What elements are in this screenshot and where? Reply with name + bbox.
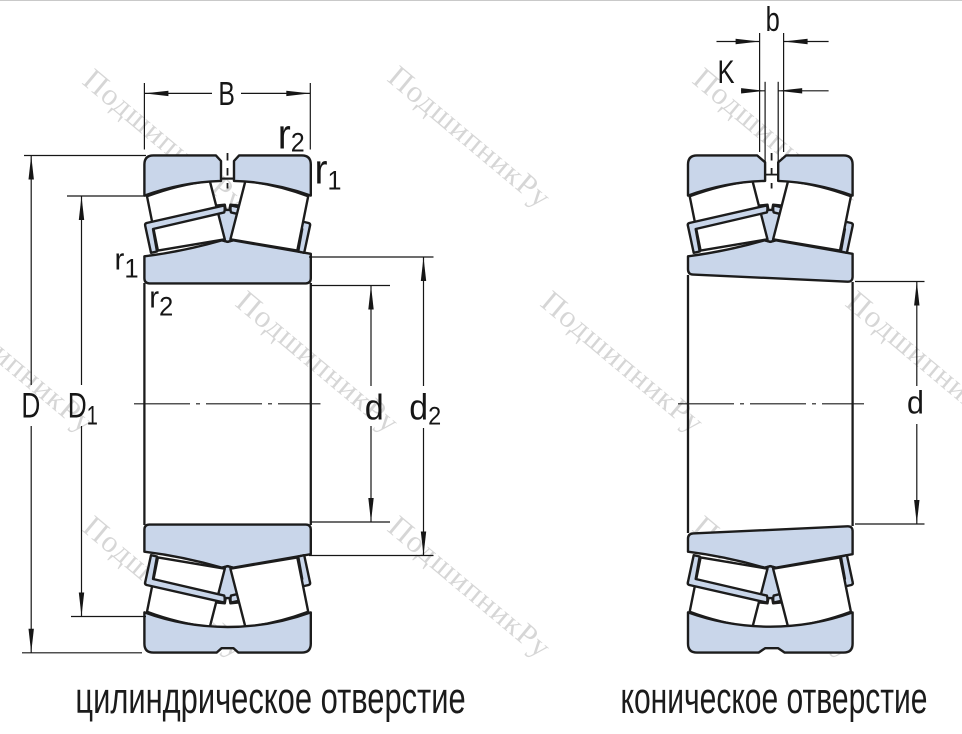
svg-text:цилиндрическое отверстие: цилиндрическое отверстие	[75, 674, 465, 722]
svg-text:d: d	[365, 388, 384, 428]
svg-text:коническое отверстие: коническое отверстие	[621, 673, 928, 722]
svg-text:B: B	[218, 77, 235, 113]
svg-text:b: b	[766, 2, 780, 39]
svg-text:d: d	[907, 385, 924, 421]
svg-text:K: K	[718, 55, 735, 90]
svg-text:D: D	[21, 386, 40, 426]
